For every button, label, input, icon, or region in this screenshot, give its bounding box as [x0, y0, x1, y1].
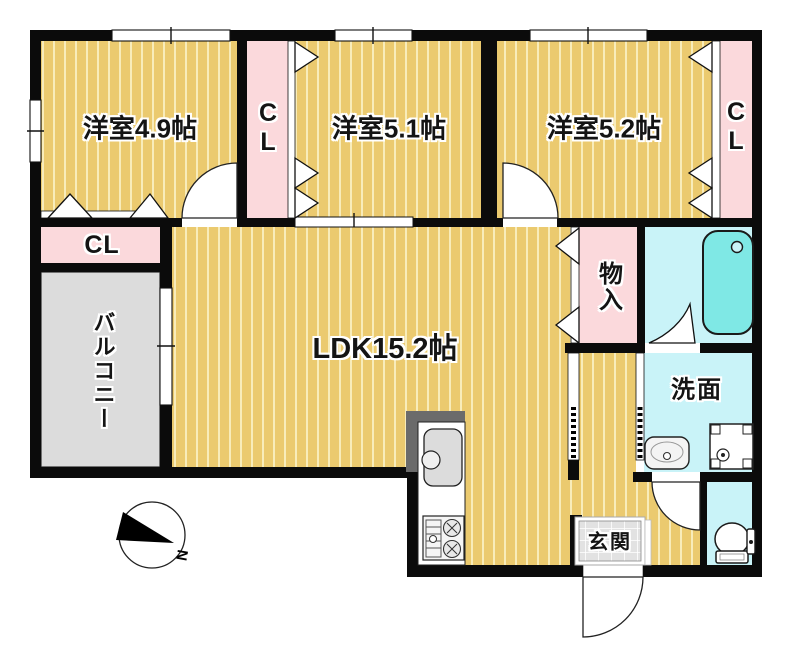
- storage-label: 物入: [595, 261, 620, 313]
- wash-basin-drain: [664, 453, 671, 460]
- toilet-bowl: [715, 523, 749, 555]
- door-arc-entrance: [583, 577, 643, 637]
- wall-outer-bottom-left: [30, 467, 418, 478]
- wall-washroom-bottom-b: [700, 472, 762, 482]
- wall-storage-bottom: [565, 343, 645, 353]
- closet-3-label: CL: [84, 232, 119, 258]
- washer-pan-corner: [711, 459, 720, 468]
- wall-kitchen-left: [407, 467, 418, 577]
- kitchen-faucet-icon: [422, 451, 440, 469]
- floor-plan-drawing: N: [0, 0, 800, 659]
- compass-north-label: N: [172, 548, 191, 562]
- wall-balcony-upper: [160, 227, 172, 288]
- room-4-9-label: 洋室4.9帖: [83, 115, 197, 142]
- bifold-strip-closet2: [712, 41, 720, 218]
- room-5-2-label: 洋室5.2帖: [547, 115, 661, 142]
- doorway-room49: [182, 218, 237, 227]
- wall-room49-closet1: [237, 40, 247, 218]
- wall-bathroom-bottom: [700, 343, 762, 353]
- wall-midband-d: [557, 218, 762, 227]
- stove-knob: [430, 536, 437, 543]
- balcony-label: バルコニー: [91, 311, 114, 431]
- doorway-room52: [503, 218, 557, 227]
- entrance-label: 玄関: [588, 533, 632, 554]
- bathtub-icon: [703, 231, 753, 334]
- wall-washroom-bottom-a: [633, 472, 652, 482]
- washer-pan-corner: [743, 459, 752, 468]
- washing-machine-pan-icon: [710, 424, 753, 469]
- hallway-floor: [579, 353, 636, 472]
- wall-midband-b: [237, 218, 295, 227]
- wall-outer-bottom-a: [407, 565, 583, 577]
- wash-basin-icon: [645, 437, 689, 469]
- kitchen-backsplash: [406, 411, 418, 472]
- closet-1-label: CL: [255, 99, 281, 157]
- wall-storage-bathroom: [637, 227, 645, 343]
- wall-closet3-bottom: [30, 263, 172, 272]
- room-5-1-label: 洋室5.1帖: [332, 115, 446, 142]
- bifold-strip-closet1: [288, 41, 295, 218]
- wall-track-stub: [568, 460, 579, 480]
- washroom-label: 洗面: [671, 379, 723, 404]
- washer-pan-corner: [743, 425, 752, 434]
- wall-outer-bottom-b: [643, 565, 762, 577]
- ldk-label: LDK15.2帖: [312, 334, 457, 364]
- toilet-base-inner: [720, 554, 744, 560]
- washer-pan-corner: [711, 425, 720, 434]
- washer-pan-drain-dot: [721, 453, 725, 457]
- wall-midband-c: [413, 218, 503, 227]
- closet-2-label: CL: [723, 98, 749, 156]
- doorway-washroom: [652, 472, 700, 482]
- doorway-bathroom: [645, 343, 700, 353]
- wall-room51-room52: [481, 40, 497, 218]
- compass-north-icon: N: [116, 502, 191, 568]
- wall-outer-left: [30, 30, 41, 478]
- bathtub-drain: [732, 242, 743, 253]
- floor-plan: N 洋室4.9帖 洋室5.1帖 洋室5.2帖 LDK15.2帖 CL CL CL…: [0, 0, 800, 659]
- wall-midband-a: [30, 218, 182, 227]
- doorway-entrance: [583, 565, 643, 577]
- wall-balcony-lower: [160, 405, 172, 467]
- entrance-step: [645, 520, 651, 565]
- toilet-flush-button: [749, 540, 753, 544]
- wall-toilet-left: [700, 472, 707, 565]
